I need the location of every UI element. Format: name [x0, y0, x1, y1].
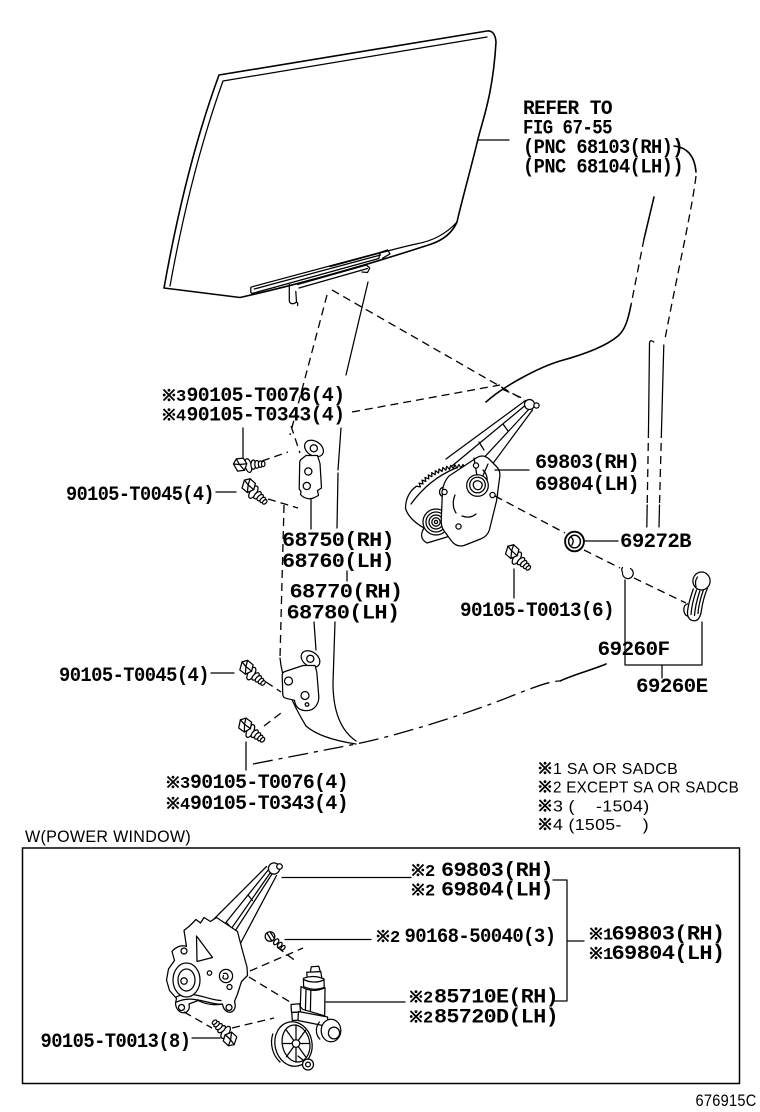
svg-text:4 (1505- ): 4 (1505- )	[553, 817, 649, 834]
svg-text:90105-T0013(6): 90105-T0013(6)	[460, 600, 614, 623]
svg-text:2: 2	[423, 1010, 433, 1029]
svg-text:2: 2	[425, 883, 435, 902]
svg-text:90105-T0343(4): 90105-T0343(4)	[190, 793, 348, 816]
svg-text:85720D(LH): 85720D(LH)	[434, 1007, 558, 1030]
svg-text:69804(LH): 69804(LH)	[612, 943, 725, 966]
svg-text:2 EXCEPT SA OR SADCB: 2 EXCEPT SA OR SADCB	[553, 780, 739, 797]
svg-text:2: 2	[390, 929, 400, 948]
svg-text:90105-T0076(4): 90105-T0076(4)	[190, 772, 348, 795]
svg-text:90105-T0013(8): 90105-T0013(8)	[41, 1031, 191, 1054]
svg-text:3 ( -1504): 3 ( -1504)	[553, 799, 650, 816]
svg-text:69260E: 69260E	[636, 676, 708, 699]
svg-text:69260F: 69260F	[598, 639, 670, 662]
svg-text:69272B: 69272B	[620, 531, 692, 554]
svg-text:4: 4	[180, 796, 190, 815]
svg-text:W(POWER WINDOW): W(POWER WINDOW)	[25, 827, 191, 846]
svg-text:68750(RH): 68750(RH)	[282, 530, 394, 553]
svg-text:90105-T0045(4): 90105-T0045(4)	[59, 665, 209, 688]
svg-text:68780(LH): 68780(LH)	[287, 603, 400, 626]
svg-text:676915C: 676915C	[696, 1091, 757, 1110]
svg-text:1 SA OR SADCB: 1 SA OR SADCB	[553, 761, 678, 778]
svg-text:69803(RH): 69803(RH)	[535, 452, 639, 475]
svg-text:68770(RH): 68770(RH)	[290, 582, 403, 605]
svg-text:69804(LH): 69804(LH)	[535, 474, 639, 497]
svg-text:68760(LH): 68760(LH)	[282, 551, 394, 574]
svg-text:90168-50040(3): 90168-50040(3)	[405, 926, 556, 949]
svg-text:2: 2	[423, 990, 433, 1009]
svg-text:3: 3	[180, 775, 190, 794]
svg-text:(PNC 68104(LH)): (PNC 68104(LH))	[523, 157, 683, 180]
svg-text:90105-T0343(4): 90105-T0343(4)	[187, 405, 345, 428]
svg-text:90105-T0045(4): 90105-T0045(4)	[66, 484, 214, 507]
svg-text:2: 2	[425, 863, 435, 882]
svg-text:4: 4	[176, 408, 186, 427]
svg-text:3: 3	[176, 388, 186, 407]
svg-text:69804(LH): 69804(LH)	[441, 880, 553, 903]
